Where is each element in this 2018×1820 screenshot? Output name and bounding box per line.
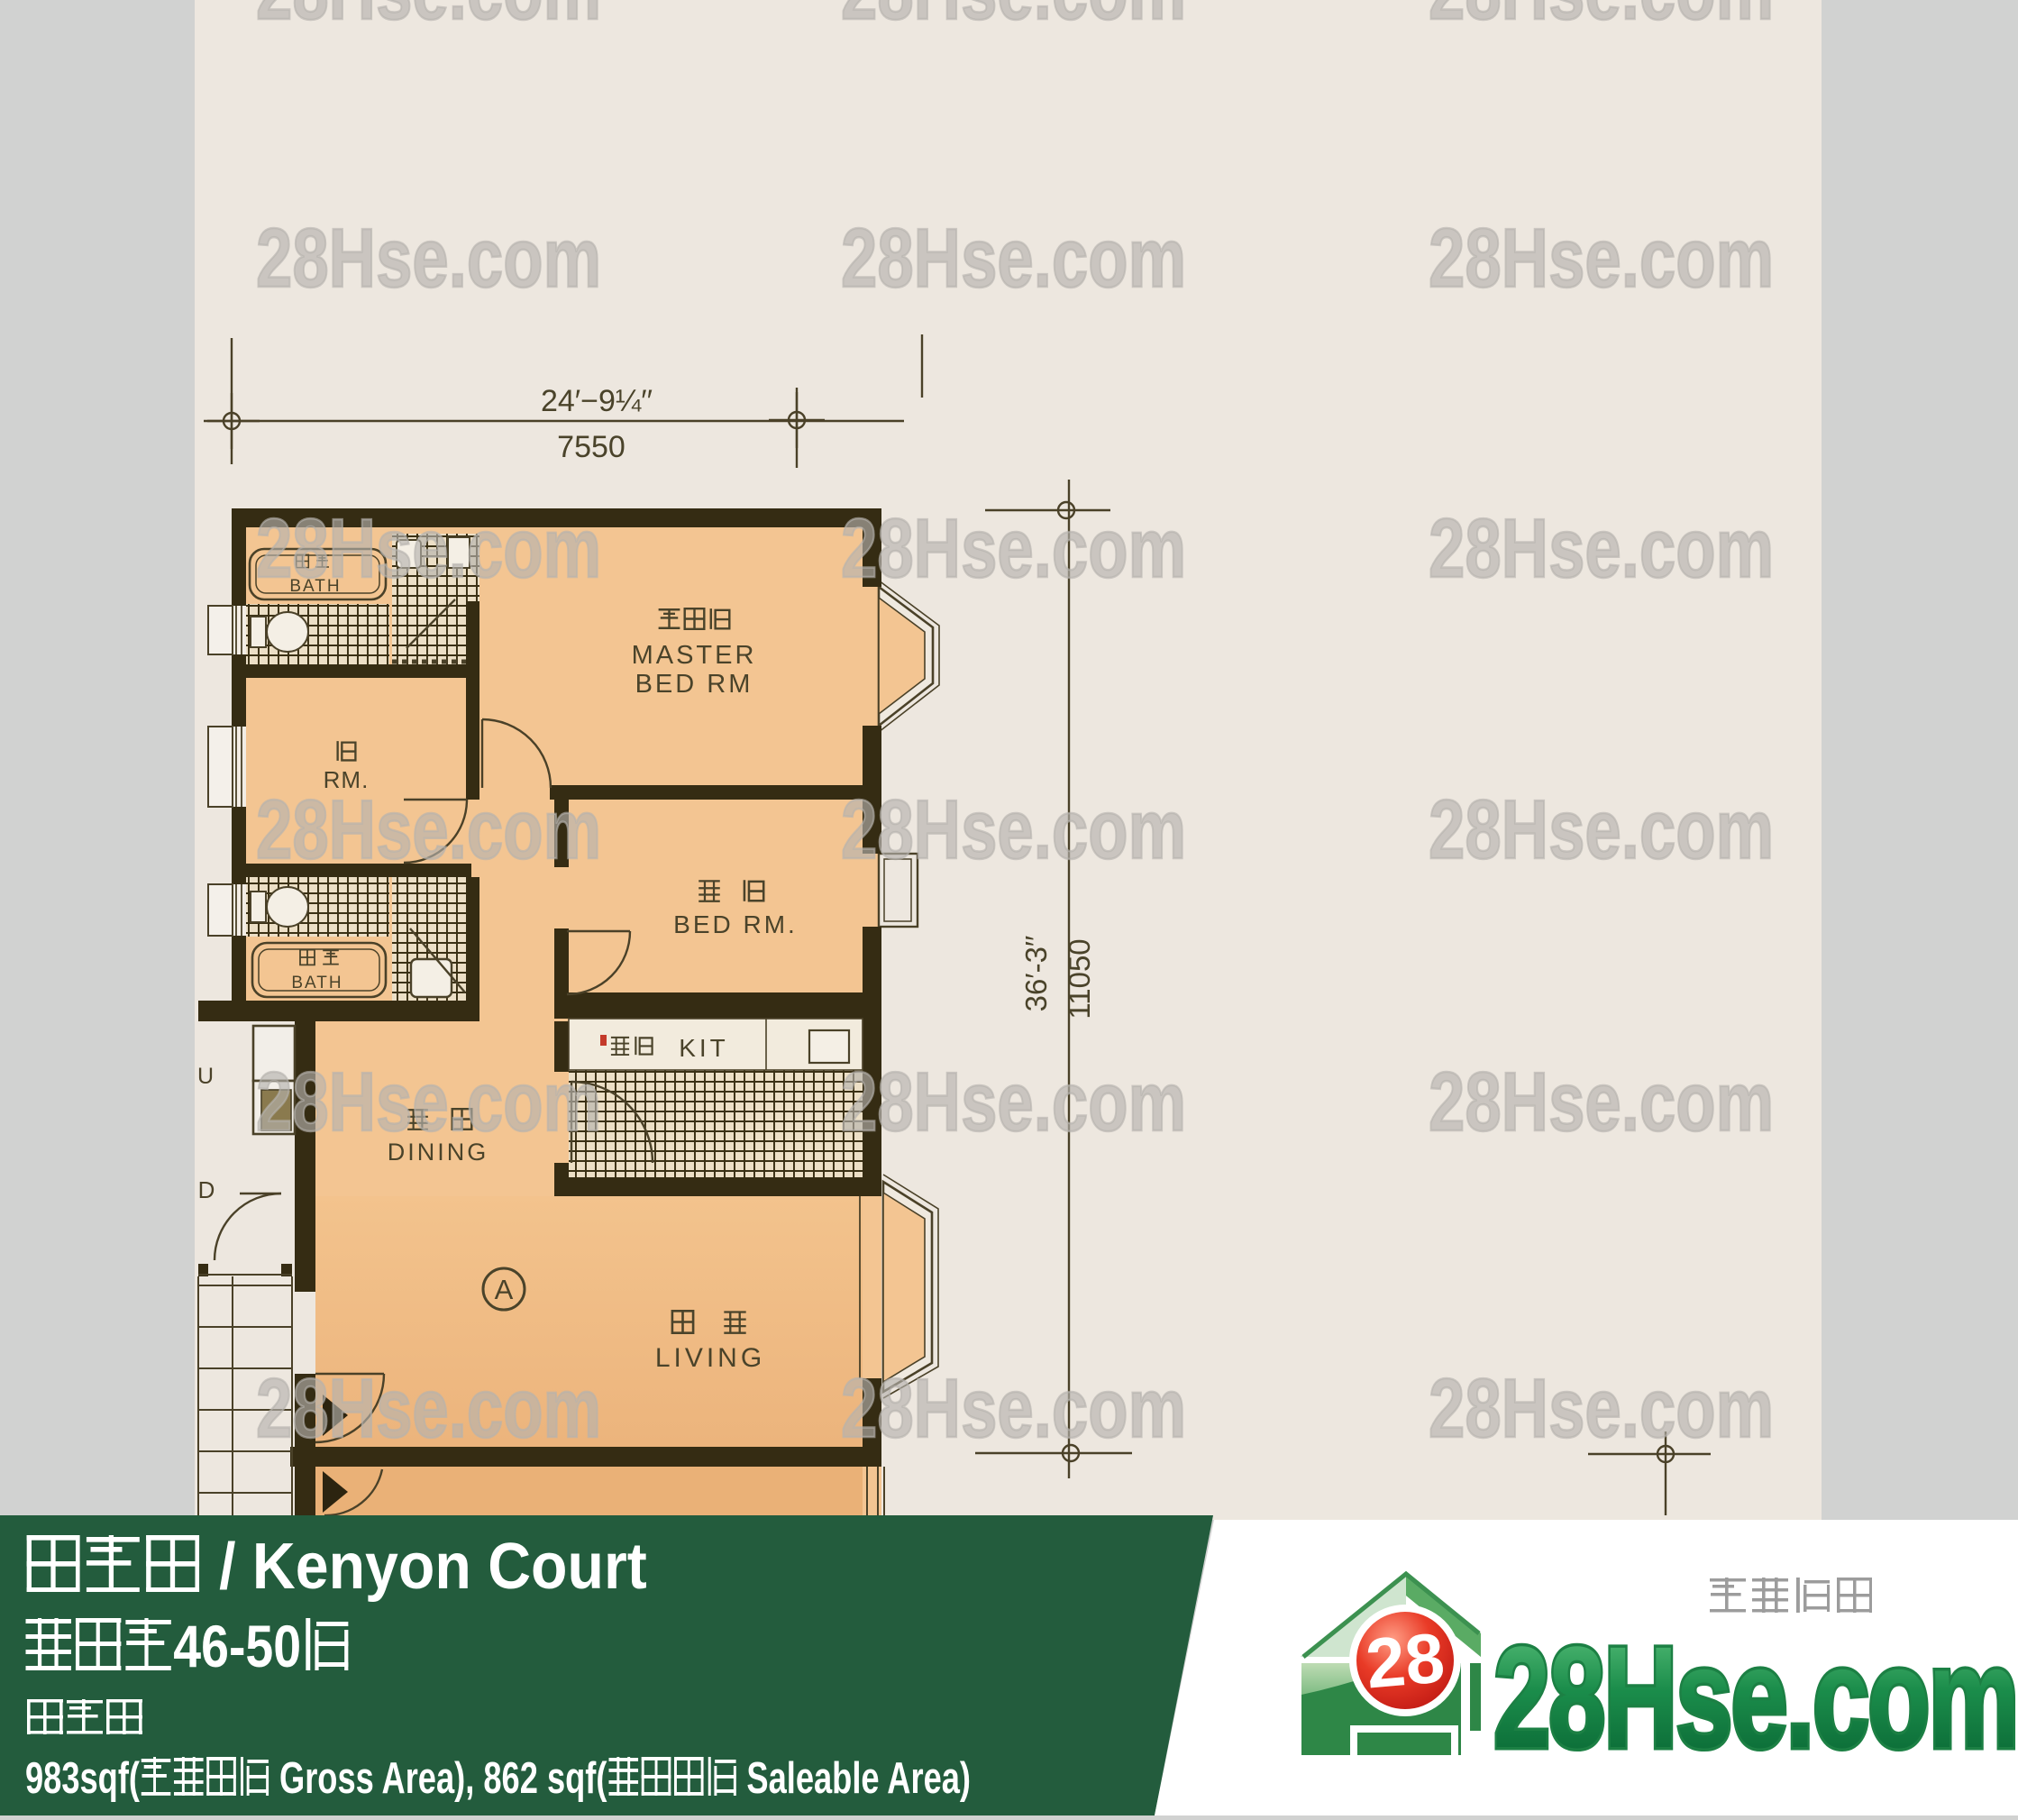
svg-text:28Hse.com: 28Hse.com xyxy=(1493,1617,2017,1779)
